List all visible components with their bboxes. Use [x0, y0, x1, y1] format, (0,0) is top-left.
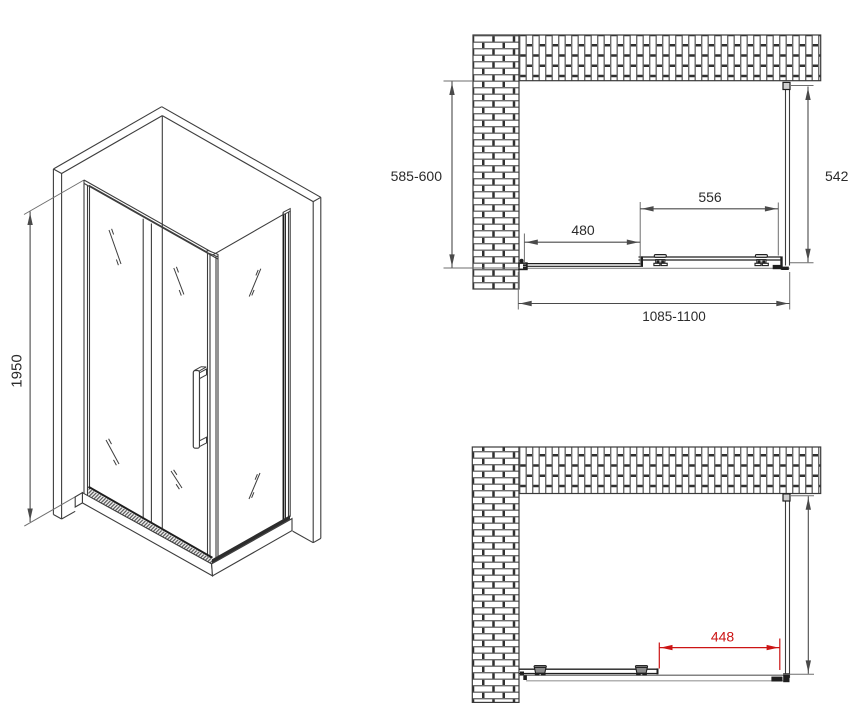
svg-text:542: 542: [825, 168, 849, 184]
svg-text:1950: 1950: [9, 354, 26, 387]
svg-text:1085-1100: 1085-1100: [642, 309, 706, 324]
svg-text:448: 448: [711, 629, 735, 645]
svg-text:480: 480: [571, 222, 595, 238]
svg-text:585-600: 585-600: [391, 168, 443, 184]
svg-text:556: 556: [698, 189, 722, 205]
